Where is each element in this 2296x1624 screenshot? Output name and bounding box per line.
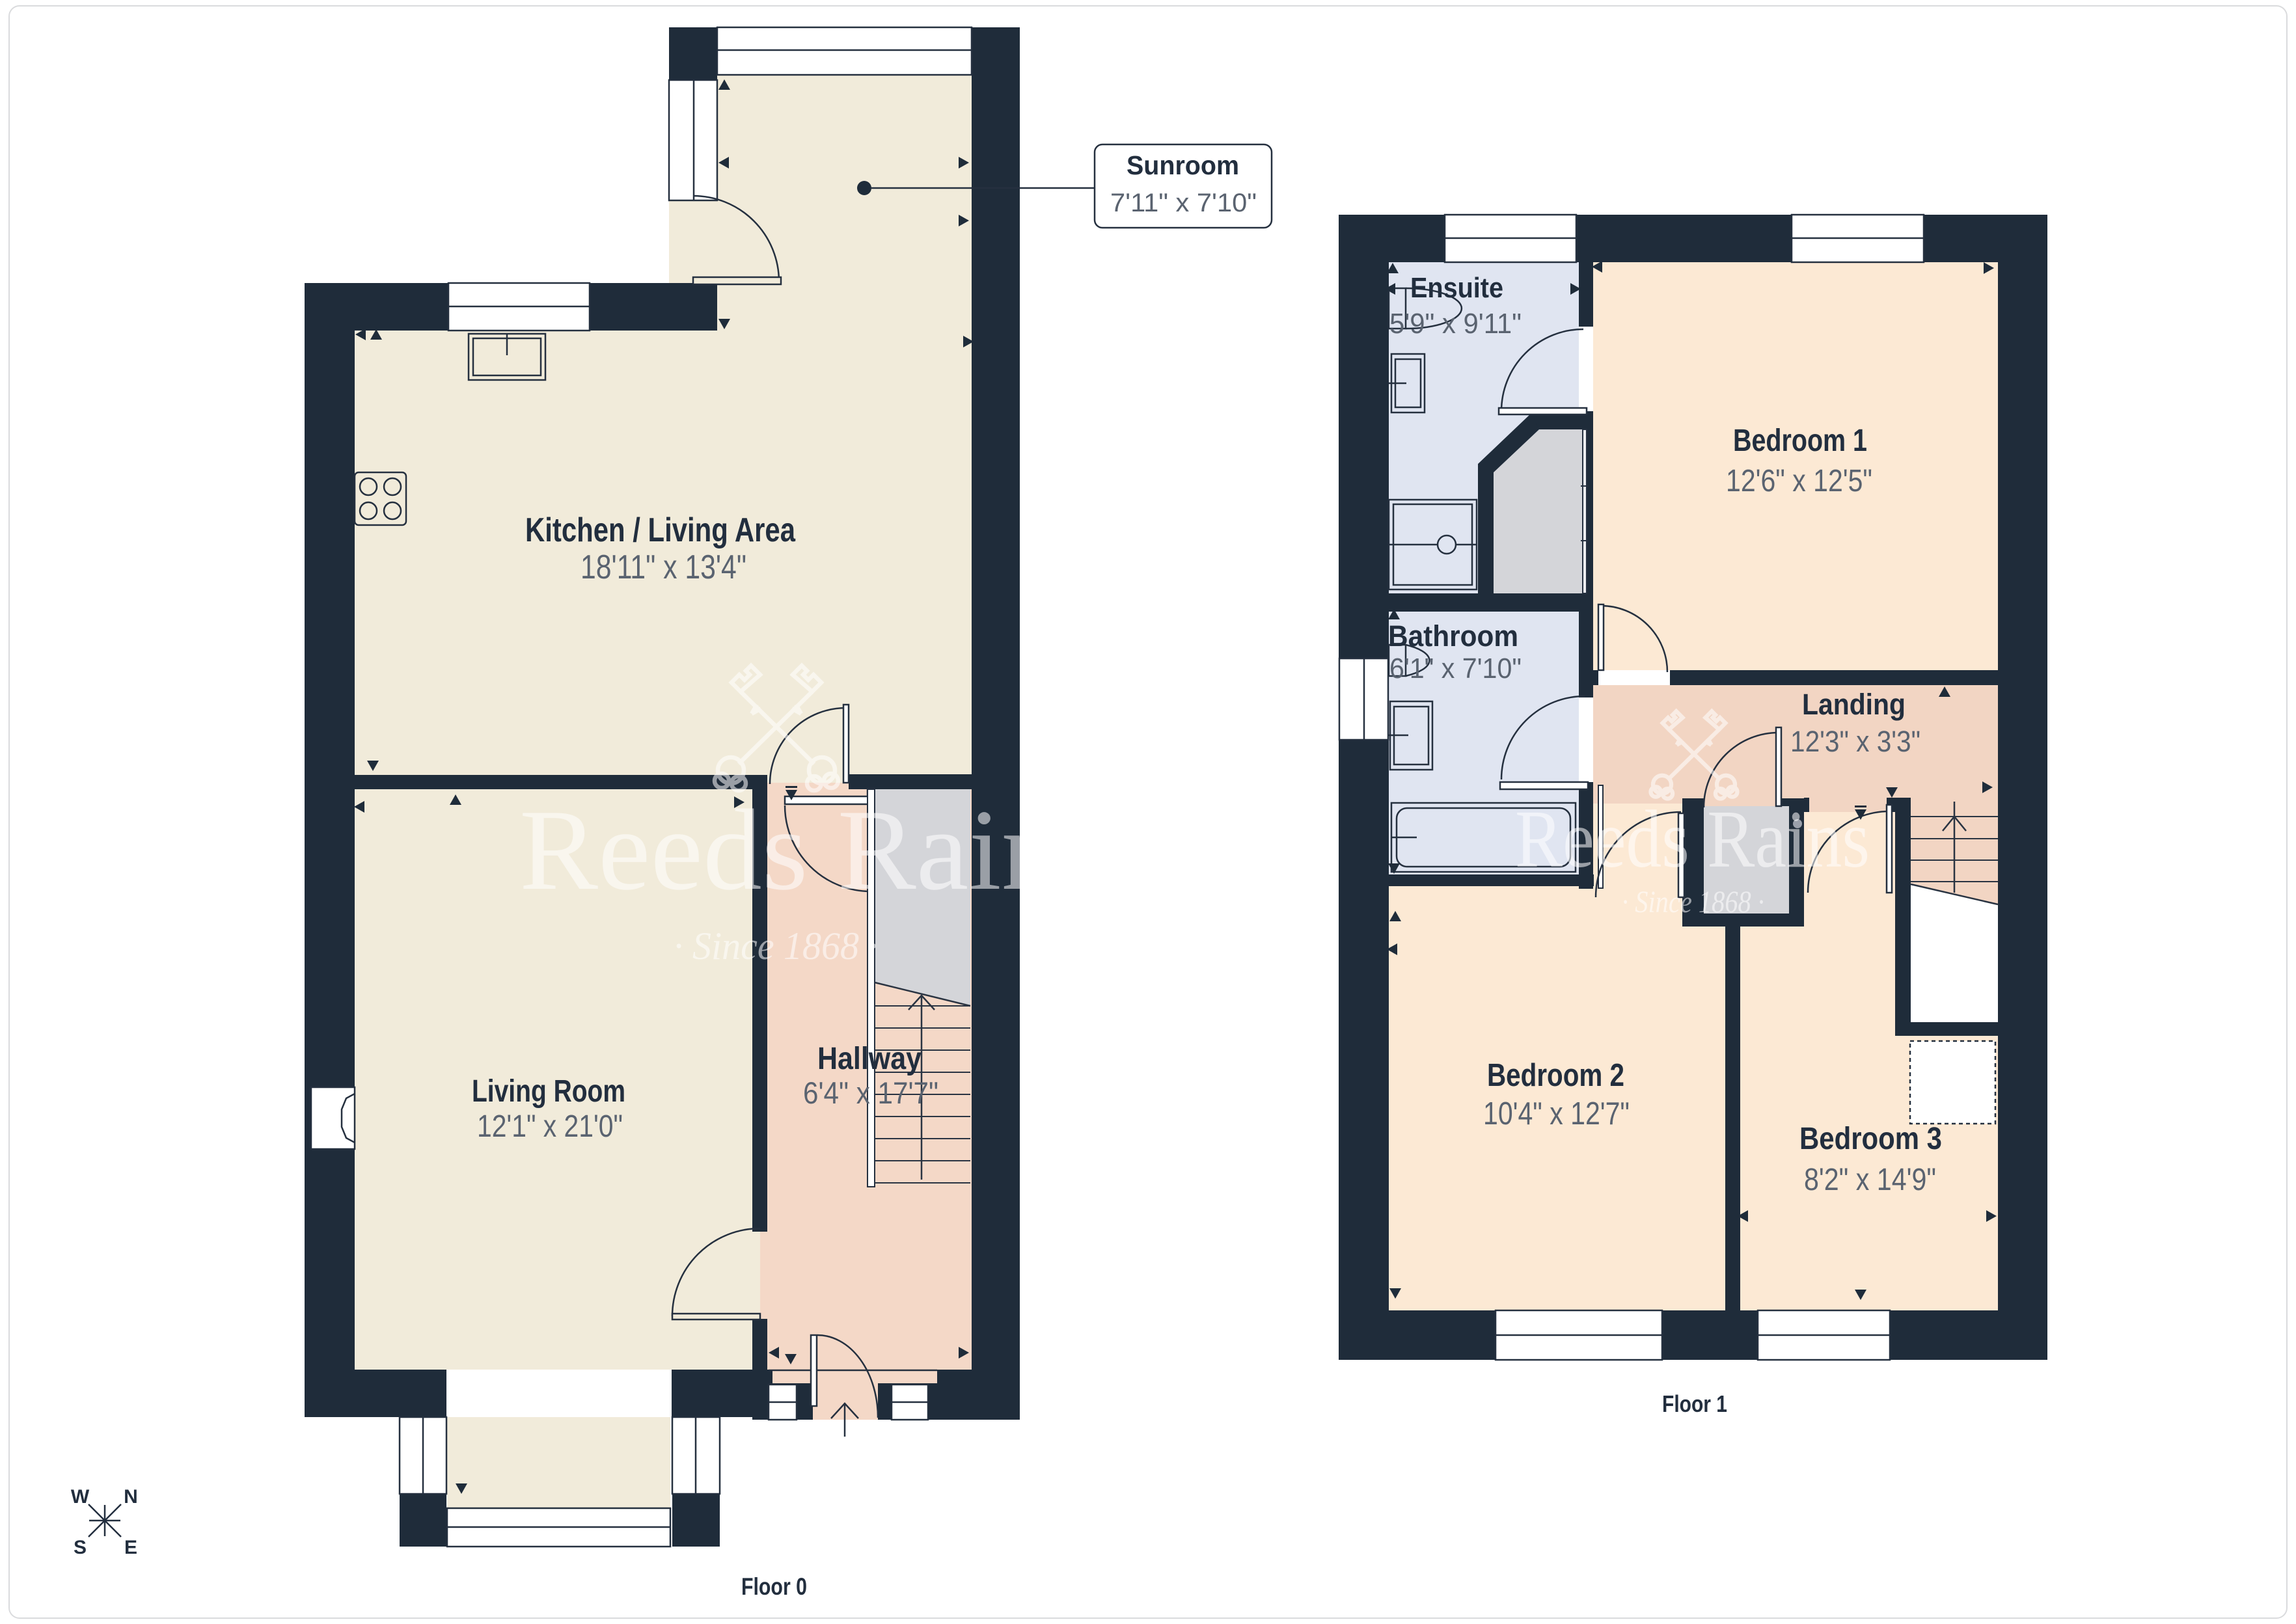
svg-text:Bedroom 2: Bedroom 2 — [1487, 1058, 1624, 1093]
svg-text:5'9" x 9'11": 5'9" x 9'11" — [1389, 308, 1522, 340]
svg-text:E: E — [124, 1537, 137, 1558]
svg-text:Reeds Rains: Reeds Rains — [519, 785, 1106, 914]
svg-text:12'6" x 12'5": 12'6" x 12'5" — [1726, 464, 1872, 498]
svg-text:Bathroom: Bathroom — [1388, 619, 1518, 653]
svg-text:8'2" x 14'9": 8'2" x 14'9" — [1804, 1163, 1936, 1197]
svg-text:10'4" x 12'7": 10'4" x 12'7" — [1483, 1096, 1630, 1131]
svg-text:Landing: Landing — [1802, 688, 1906, 721]
svg-text:Hallway: Hallway — [817, 1042, 922, 1076]
svg-text:· Since 1868 ·: · Since 1868 · — [1622, 885, 1764, 919]
svg-text:Floor 1: Floor 1 — [1662, 1390, 1727, 1417]
svg-text:6'4" x 17'7": 6'4" x 17'7" — [803, 1076, 938, 1110]
svg-text:Kitchen / Living Area: Kitchen / Living Area — [525, 511, 796, 549]
svg-text:Bedroom 1: Bedroom 1 — [1733, 424, 1867, 458]
svg-text:Ensuite: Ensuite — [1410, 272, 1503, 304]
svg-text:W: W — [71, 1486, 90, 1508]
svg-text:7'11" x 7'10": 7'11" x 7'10" — [1110, 189, 1257, 217]
svg-text:12'1" x 21'0": 12'1" x 21'0" — [477, 1109, 623, 1144]
svg-text:Bedroom 3: Bedroom 3 — [1799, 1122, 1942, 1156]
svg-text:Sunroom: Sunroom — [1127, 150, 1239, 180]
svg-text:· Since 1868 ·: · Since 1868 · — [674, 925, 878, 968]
svg-text:12'3" x 3'3": 12'3" x 3'3" — [1790, 725, 1920, 758]
svg-text:Living Room: Living Room — [472, 1074, 625, 1109]
svg-text:Floor 0: Floor 0 — [741, 1573, 807, 1600]
svg-text:Reeds Rains: Reeds Rains — [1515, 794, 1870, 885]
svg-text:18'11" x 13'4": 18'11" x 13'4" — [581, 548, 746, 586]
svg-text:6'1" x 7'10": 6'1" x 7'10" — [1389, 653, 1522, 684]
svg-text:N: N — [124, 1486, 138, 1508]
svg-text:S: S — [74, 1537, 87, 1558]
